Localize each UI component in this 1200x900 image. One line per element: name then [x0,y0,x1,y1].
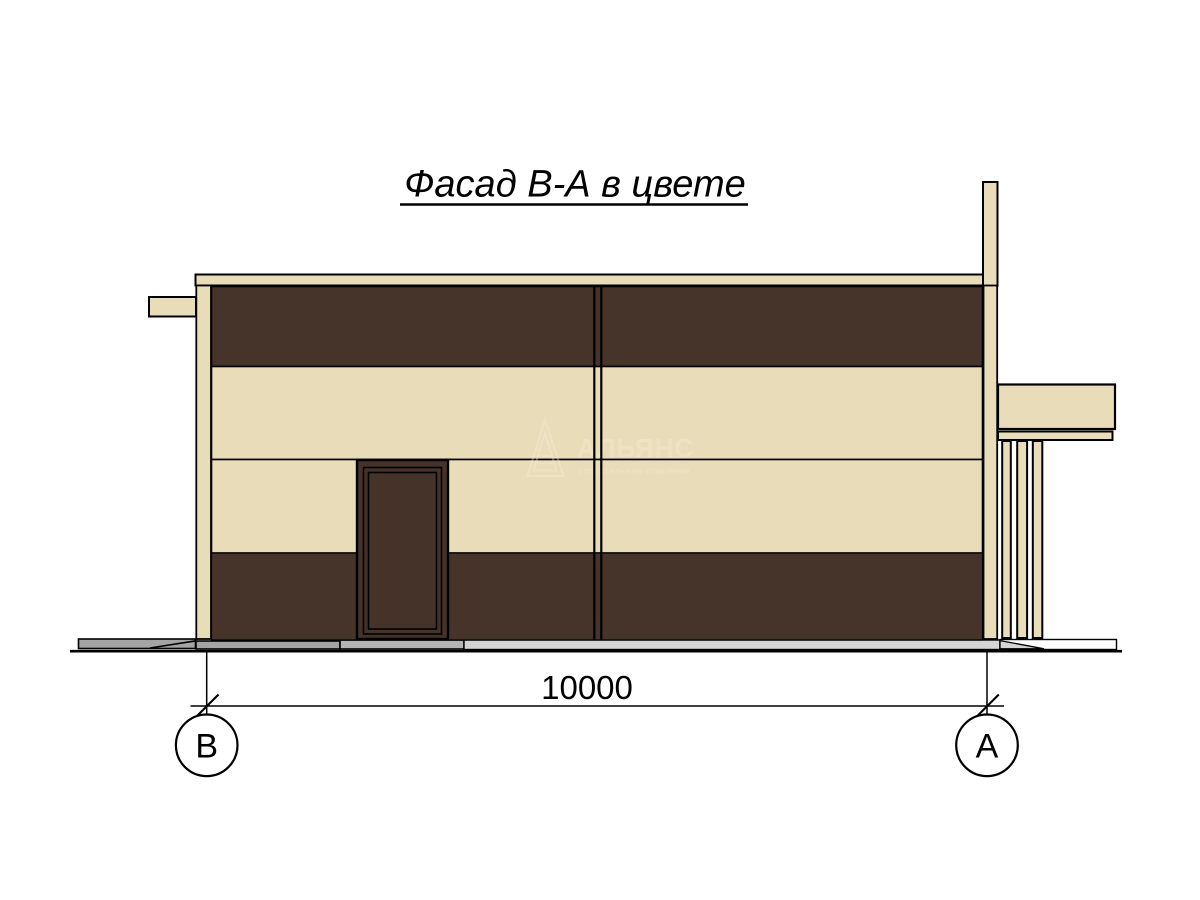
svg-text:Фасад В-А в цвете: Фасад В-А в цвете [404,164,746,206]
svg-text:В: В [195,728,218,766]
svg-text:А: А [976,728,999,766]
svg-text:10000: 10000 [541,669,633,706]
